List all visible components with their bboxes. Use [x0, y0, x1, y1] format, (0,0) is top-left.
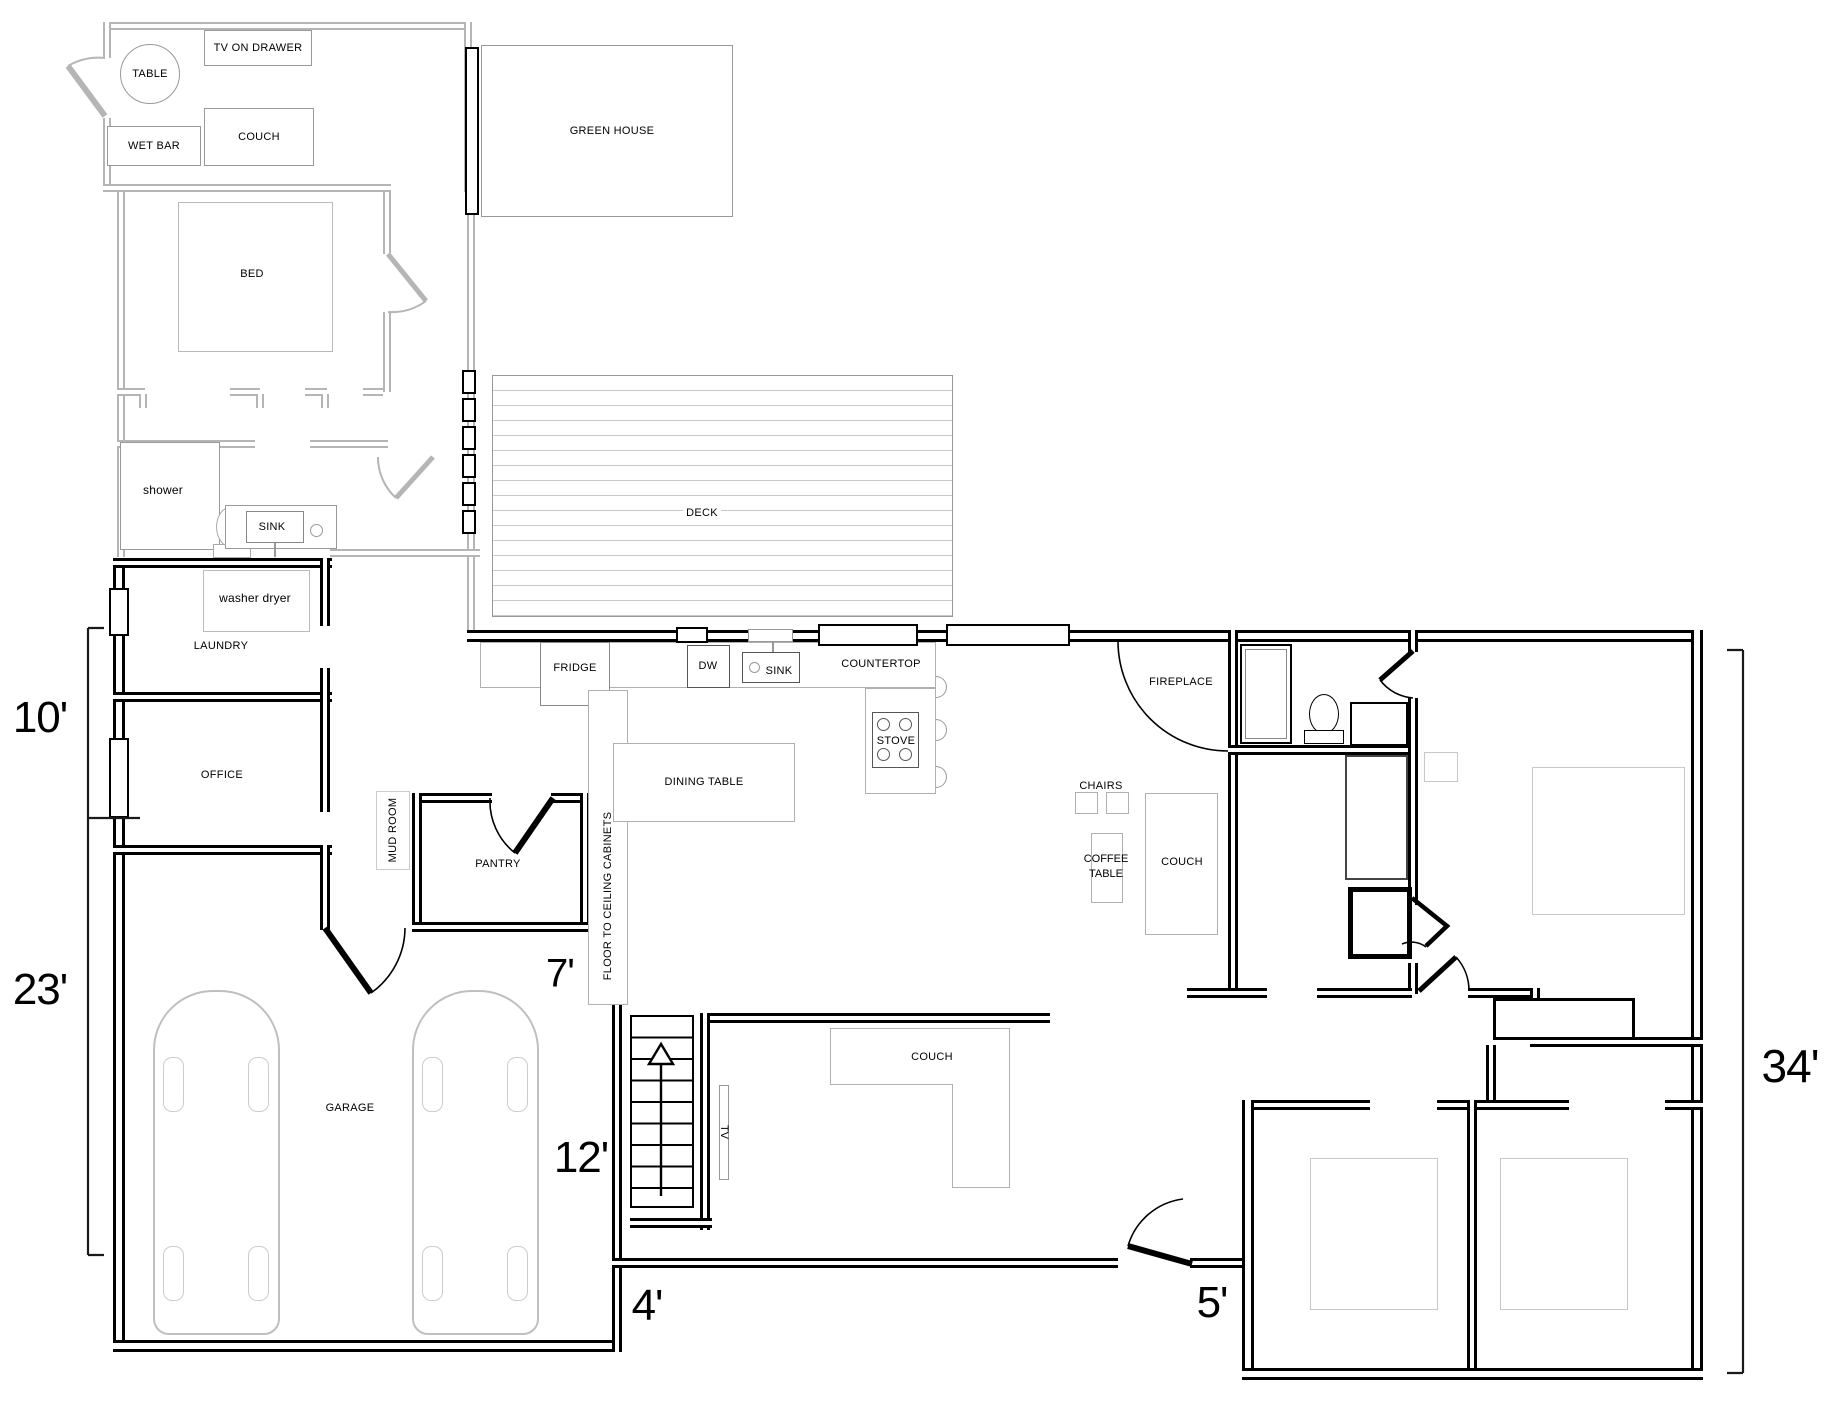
faucet-stem	[274, 543, 276, 557]
wall	[612, 1000, 622, 1352]
closet	[1493, 998, 1635, 1040]
closet-door-leaf	[1412, 898, 1447, 946]
fireplace-arc	[1118, 641, 1228, 751]
car-wheel	[422, 1057, 443, 1112]
door-arc	[490, 798, 515, 853]
label-tv: TV	[718, 1125, 730, 1139]
wall	[1408, 630, 1418, 652]
wall	[700, 1013, 1050, 1023]
label-dw: DW	[699, 660, 718, 672]
label-couch-living: COUCH	[1161, 856, 1203, 868]
dimension-10ft: 10'	[13, 693, 67, 743]
label-shower: shower	[143, 483, 183, 497]
label-cabinets: FLOOR TO CEILING CABINETS	[602, 812, 614, 980]
wall	[1468, 988, 1534, 998]
burner-icon	[899, 748, 912, 761]
label-fireplace: FIREPLACE	[1149, 676, 1213, 688]
wall	[1228, 630, 1238, 998]
wall	[103, 22, 472, 30]
burner-icon	[899, 718, 912, 731]
wall	[412, 922, 600, 932]
label-laundry: LAUNDRY	[194, 640, 248, 652]
staircase	[630, 1015, 694, 1208]
wall	[700, 1013, 710, 1230]
bed	[1500, 1158, 1628, 1310]
wall	[1317, 988, 1412, 998]
label-chairs: CHAIRS	[1079, 780, 1122, 792]
window	[462, 370, 476, 394]
wall	[630, 1218, 712, 1228]
wall	[1242, 1100, 1370, 1110]
bed	[1532, 767, 1685, 915]
wall	[1665, 1100, 1703, 1110]
exterior-wall	[113, 558, 125, 1352]
dimension-4ft: 4'	[632, 1281, 663, 1331]
label-stove: STOVE	[877, 735, 916, 747]
label-garage: GARAGE	[326, 1102, 375, 1114]
wall	[330, 549, 480, 557]
wall	[1408, 698, 1418, 750]
wall	[320, 845, 330, 930]
faucet-icon	[749, 662, 760, 673]
label-pantry: PANTRY	[475, 858, 520, 870]
chair	[1106, 792, 1129, 814]
label-couch-tv: COUCH	[911, 1051, 953, 1063]
wall	[103, 22, 111, 58]
door-leaf	[388, 254, 426, 301]
bed	[1310, 1158, 1438, 1310]
wall	[103, 184, 391, 192]
wall	[1437, 1100, 1569, 1110]
window	[946, 624, 1070, 646]
burner-icon	[877, 718, 890, 731]
window	[676, 627, 708, 643]
dresser	[1424, 752, 1458, 782]
window	[462, 454, 476, 478]
car-wheel	[507, 1246, 528, 1301]
car-wheel	[507, 1057, 528, 1112]
dimension-bracket-right	[1727, 650, 1743, 1373]
bath-sink	[1350, 702, 1408, 746]
dimension-5ft: 5'	[1197, 1278, 1228, 1328]
wall	[113, 845, 332, 855]
sliding-door	[818, 624, 918, 646]
window	[462, 510, 476, 534]
dimension-12ft: 12'	[554, 1133, 608, 1183]
wall	[467, 215, 475, 630]
deck	[492, 375, 953, 617]
label-mud-room: MUD ROOM	[387, 798, 399, 863]
wall	[363, 388, 383, 396]
wall	[256, 394, 264, 408]
label-countertop: COUNTERTOP	[841, 658, 921, 670]
window	[462, 426, 476, 450]
shower-stall	[1240, 644, 1292, 744]
label-washer-dryer: washer dryer	[219, 591, 291, 605]
chair	[1075, 792, 1098, 814]
wall	[1408, 750, 1418, 905]
label-office: OFFICE	[201, 769, 243, 781]
wall	[612, 1258, 1118, 1268]
door-arc	[388, 301, 426, 312]
label-tv-on-drawer: TV ON DRAWER	[214, 42, 303, 54]
toilet-tank-icon	[1304, 730, 1344, 744]
door-leaf	[515, 798, 553, 853]
wall	[412, 793, 492, 803]
label-couch-top: COUCH	[238, 131, 280, 143]
closet	[1348, 887, 1412, 959]
door-arc	[1128, 1199, 1183, 1246]
car-wheel	[248, 1057, 269, 1112]
greenhouse-wall-panel	[465, 47, 479, 215]
wall	[320, 558, 330, 626]
stool-icon	[936, 719, 947, 741]
wall	[1228, 745, 1418, 755]
dimension-34ft: 34'	[1762, 1039, 1819, 1093]
door-leaf	[1380, 651, 1413, 680]
door-arc	[1380, 680, 1413, 698]
door-leaf	[325, 928, 371, 993]
label-bed: BED	[240, 268, 264, 280]
window	[109, 738, 129, 818]
floor-plan: TV ON DRAWER TABLE WET BAR COUCH GREEN H…	[0, 0, 1836, 1428]
wall	[1467, 1100, 1477, 1370]
car-wheel	[422, 1246, 443, 1301]
wall	[113, 692, 332, 702]
label-sink-bath: SINK	[259, 521, 286, 533]
label-dining-table: DINING TABLE	[665, 776, 744, 788]
stool-icon	[936, 676, 947, 698]
wall	[383, 192, 391, 254]
label-table: TABLE	[132, 68, 168, 80]
car-wheel	[163, 1057, 184, 1112]
door-arc	[1456, 957, 1469, 991]
wall	[320, 668, 330, 812]
wall	[1486, 1045, 1496, 1105]
wall	[310, 440, 388, 448]
door-leaf	[396, 457, 433, 498]
dimension-23ft: 23'	[13, 965, 67, 1015]
wall	[1187, 988, 1267, 998]
wall	[383, 312, 391, 392]
label-green-house: GREEN HOUSE	[570, 125, 655, 137]
wall	[1190, 1258, 1248, 1268]
burner-icon	[877, 748, 890, 761]
window	[462, 398, 476, 422]
stool-icon	[936, 766, 947, 788]
sectional-couch	[952, 1084, 1010, 1188]
door-leaf	[1419, 957, 1456, 991]
wall	[113, 558, 332, 568]
label-fridge: FRIDGE	[553, 662, 596, 674]
car-wheel	[248, 1246, 269, 1301]
label-wet-bar: WET BAR	[128, 140, 180, 152]
window	[109, 588, 129, 636]
wall	[321, 394, 329, 408]
closet	[1345, 755, 1408, 880]
label-sink-kitchen: SINK	[766, 665, 793, 677]
label-deck: DECK	[683, 507, 721, 519]
door-arc	[371, 928, 405, 993]
exterior-wall	[467, 630, 1703, 642]
car-wheel	[163, 1246, 184, 1301]
dimension-7ft: 7'	[546, 952, 574, 997]
window	[462, 482, 476, 506]
wall	[1242, 1100, 1254, 1380]
window	[748, 629, 793, 642]
door-leaf	[68, 66, 105, 116]
exterior-wall	[1242, 1368, 1703, 1380]
faucet-icon	[310, 524, 323, 537]
exterior-wall	[1691, 630, 1703, 1380]
wall	[139, 394, 147, 408]
door-arc	[68, 58, 105, 66]
wall	[412, 793, 422, 932]
label-coffee-table: COFFEE TABLE	[1076, 852, 1136, 882]
door-arc	[378, 457, 396, 498]
exterior-wall	[113, 1340, 620, 1352]
door-leaf	[1128, 1246, 1192, 1264]
toilet-icon	[1309, 694, 1339, 734]
